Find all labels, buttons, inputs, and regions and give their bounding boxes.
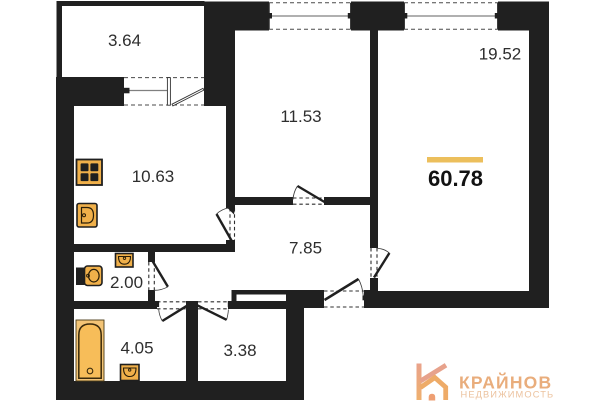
svg-text:НЕДВИЖИМОСТЬ: НЕДВИЖИМОСТЬ	[461, 390, 555, 400]
svg-text:10.63: 10.63	[132, 167, 175, 186]
svg-text:2.00: 2.00	[110, 273, 143, 292]
svg-text:60.78: 60.78	[428, 166, 483, 191]
svg-text:19.52: 19.52	[479, 45, 522, 64]
svg-text:4.05: 4.05	[120, 339, 153, 358]
svg-text:7.85: 7.85	[289, 239, 322, 258]
svg-text:11.53: 11.53	[280, 107, 321, 126]
svg-text:3.38: 3.38	[223, 341, 256, 360]
svg-text:3.64: 3.64	[108, 31, 141, 50]
